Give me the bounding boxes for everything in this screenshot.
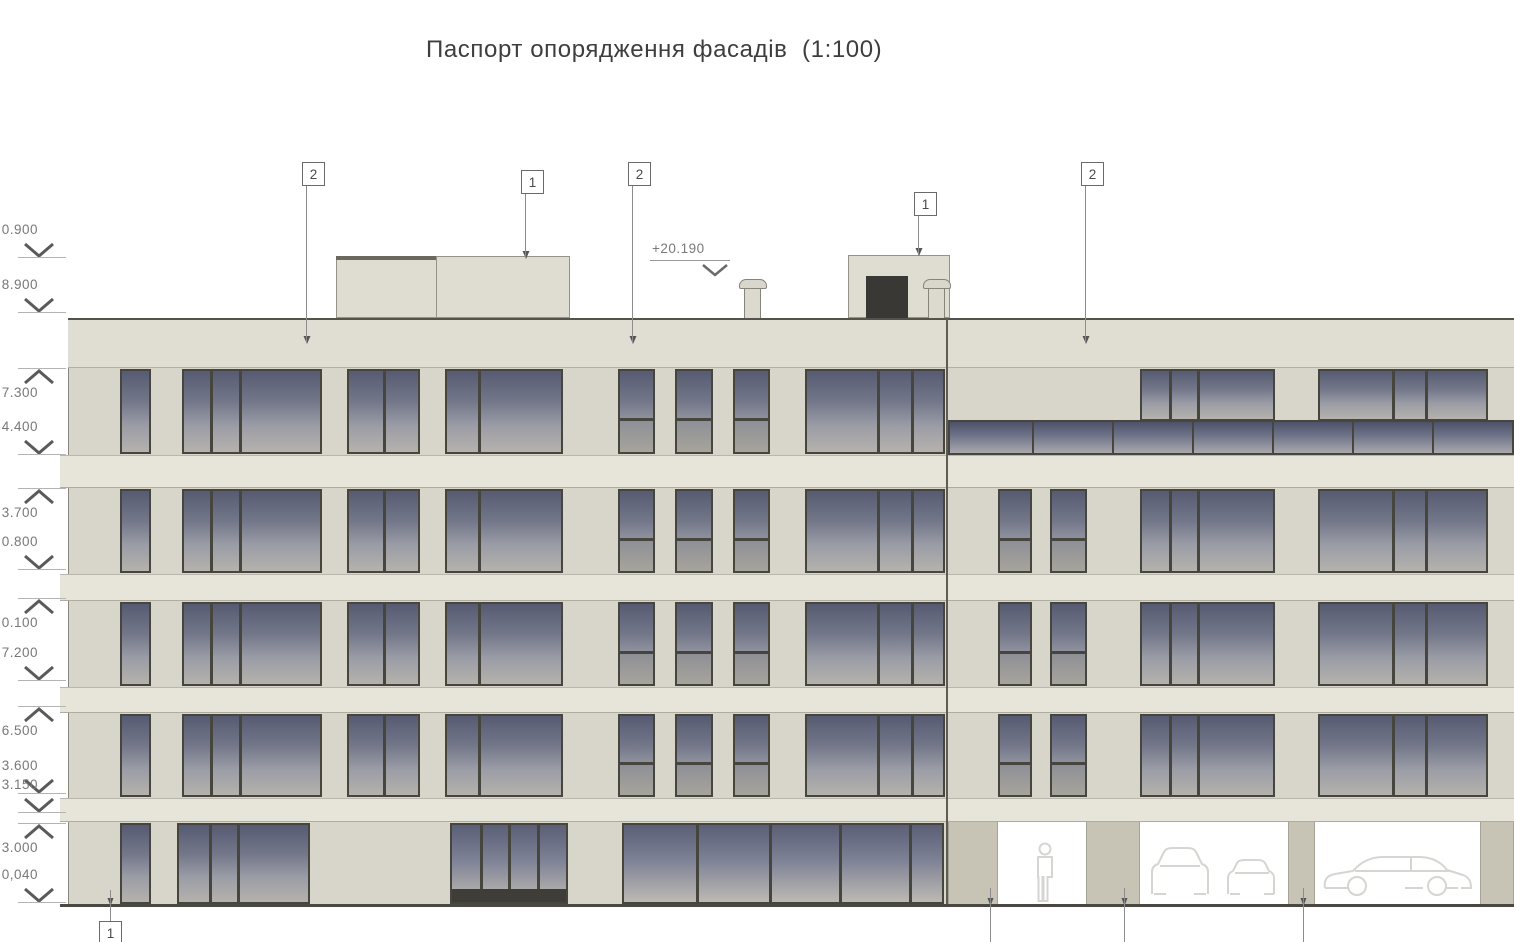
window-mullion [1197, 491, 1200, 571]
window-mullion [877, 716, 880, 795]
window [450, 823, 568, 904]
window-mullion [1169, 491, 1172, 571]
window [805, 714, 945, 797]
window-lower-pane [735, 538, 768, 571]
elevation-marker-label: 3.000 [0, 840, 38, 855]
elevation-marker-chevron-down [22, 887, 56, 903]
window-mullion [239, 491, 242, 571]
window-lower-pane [735, 418, 768, 452]
window [1318, 714, 1488, 797]
window-mullion [1169, 604, 1172, 684]
facade-elevation-drawing: +20.190212120.9008.9007.3004.4003.7000.8… [0, 0, 1514, 942]
axis-leader-line [1124, 888, 1125, 942]
window [675, 602, 713, 686]
window-mullion [909, 825, 912, 902]
window-mullion [383, 371, 386, 452]
roof-vent-stem [744, 289, 761, 318]
elevation-marker-label: 3.600 [0, 758, 38, 773]
spandrel-band [60, 574, 1514, 601]
window [1318, 489, 1488, 573]
window [1318, 602, 1488, 686]
window-mullion [239, 371, 242, 452]
elevation-marker-line [18, 680, 66, 681]
spandrel-band [60, 798, 1514, 822]
window-mullion [478, 716, 481, 795]
window [1140, 714, 1275, 797]
elevation-marker-chevron-up [22, 489, 56, 505]
callout-leader-arrow [522, 251, 530, 259]
callout-leader-line [525, 192, 526, 258]
callout-leader-arrow [915, 248, 923, 256]
window-mullion [1425, 371, 1428, 419]
window [733, 602, 770, 686]
window [1318, 369, 1488, 421]
bottom-section-callout: 1 [99, 921, 122, 942]
window-mullion [210, 491, 213, 571]
elevation-marker-chevron-down [22, 554, 56, 570]
window [177, 823, 310, 904]
window-mullion [1425, 716, 1428, 795]
roof-penthouse-divider [436, 256, 437, 318]
window-mullion [239, 604, 242, 684]
window-lower-pane [1000, 538, 1030, 571]
window-mullion [1425, 604, 1428, 684]
window [733, 489, 770, 573]
window-mullion [1425, 491, 1428, 571]
callout-leader-arrow [629, 336, 637, 344]
window-lower-pane [620, 762, 653, 795]
window [1140, 602, 1275, 686]
roof-level-chevron [700, 262, 730, 278]
elevation-marker-chevron-up [22, 707, 56, 723]
section-callout: 1 [914, 192, 937, 216]
callout-leader-line [918, 214, 919, 255]
window [120, 823, 151, 904]
ribbon-mullion [1112, 422, 1114, 453]
window-mullion [1197, 604, 1200, 684]
elevation-marker-label: 0.800 [0, 534, 38, 549]
window-mullion [696, 825, 699, 902]
entrance-threshold [452, 889, 566, 902]
elevation-marker-line [18, 823, 66, 824]
window [805, 369, 945, 454]
roof-level-underline [650, 260, 730, 261]
elevation-marker-line [18, 312, 66, 313]
spandrel-band [60, 687, 1514, 713]
cars-front-silhouette [1140, 822, 1288, 905]
window [733, 369, 770, 454]
roof-vent-stem [928, 289, 945, 318]
window-lower-pane [620, 418, 653, 452]
elevation-marker-chevron-down [22, 797, 56, 813]
window-lower-pane [677, 651, 711, 684]
elevation-marker-label: 0,040 [0, 867, 38, 882]
window-lower-pane [735, 651, 768, 684]
window [675, 714, 713, 797]
elevation-marker-line [18, 902, 66, 903]
window-mullion [877, 604, 880, 684]
window-lower-pane [1052, 762, 1085, 795]
section-callout: 2 [302, 162, 325, 186]
window [998, 489, 1032, 573]
window [182, 369, 322, 454]
elevation-marker-chevron-down [22, 665, 56, 681]
elevation-marker-line [18, 812, 66, 813]
axis-leader-line [990, 888, 991, 942]
section-callout: 2 [1081, 162, 1104, 186]
window [622, 823, 944, 904]
roof-penthouse-left-cap [336, 256, 436, 260]
window-mullion [478, 604, 481, 684]
window [998, 602, 1032, 686]
window-mullion [237, 825, 240, 902]
elevation-marker-label: 3.150 [0, 777, 38, 792]
person-silhouette [998, 822, 1086, 905]
elevation-marker-chevron-up [22, 599, 56, 615]
window-mullion [210, 371, 213, 452]
window [1140, 369, 1275, 421]
window [1140, 489, 1275, 573]
elevation-marker-label: 8.900 [0, 277, 38, 292]
window [675, 489, 713, 573]
window-mullion [210, 716, 213, 795]
window [182, 714, 322, 797]
window [618, 714, 655, 797]
callout-leader-line [1085, 184, 1086, 343]
window-mullion [1392, 371, 1395, 419]
elevation-marker-line [18, 706, 66, 707]
elevation-marker-line [18, 368, 66, 369]
window-lower-pane [677, 538, 711, 571]
roof-penthouse [336, 256, 570, 318]
facade-section-divider [946, 318, 948, 905]
elevation-marker-label: 0.900 [0, 222, 38, 237]
window [1050, 602, 1087, 686]
window [347, 489, 420, 573]
ribbon-mullion [1352, 422, 1354, 453]
window-mullion [1169, 716, 1172, 795]
ribbon-mullion [1032, 422, 1034, 453]
elevation-marker-label: 3.700 [0, 505, 38, 520]
window [998, 714, 1032, 797]
window [120, 714, 151, 797]
window-mullion [911, 491, 914, 571]
window-mullion [877, 371, 880, 452]
elevation-marker-chevron-up [22, 824, 56, 840]
parking-column [1480, 822, 1514, 905]
window-mullion [1197, 371, 1200, 419]
roof-vent-cap [739, 279, 767, 289]
window [805, 602, 945, 686]
window [618, 489, 655, 573]
elevation-marker-chevron-down [22, 439, 56, 455]
car-side-silhouette [1315, 822, 1480, 905]
window-mullion [911, 716, 914, 795]
window [1050, 489, 1087, 573]
elevation-marker-label: 0.100 [0, 615, 38, 630]
parapet-band [68, 318, 1514, 368]
elevation-marker-chevron-down [22, 242, 56, 258]
elevation-marker-chevron-up [22, 369, 56, 385]
window-mullion [911, 371, 914, 452]
window-mullion [239, 716, 242, 795]
window-mullion [1169, 371, 1172, 419]
elevation-marker-label: 7.300 [0, 385, 38, 400]
window-mullion [383, 604, 386, 684]
elevation-marker-label: 6.500 [0, 723, 38, 738]
window [182, 602, 322, 686]
ground-line [60, 904, 1514, 907]
window-mullion [877, 491, 880, 571]
elevation-marker-line [18, 488, 66, 489]
window-lower-pane [620, 538, 653, 571]
elevation-marker-label: 7.200 [0, 645, 38, 660]
callout-leader-line [306, 184, 307, 343]
window [120, 369, 151, 454]
window [445, 602, 563, 686]
window [1050, 714, 1087, 797]
window [120, 489, 151, 573]
window-lower-pane [1052, 651, 1085, 684]
section-callout: 1 [521, 170, 544, 194]
spandrel-band [60, 455, 1514, 488]
window-mullion [769, 825, 772, 902]
callout-leader-line [632, 184, 633, 343]
window-lower-pane [1000, 651, 1030, 684]
window-mullion [383, 716, 386, 795]
callout-leader-arrow [1082, 336, 1090, 344]
window [347, 369, 420, 454]
window-mullion [478, 491, 481, 571]
window-lower-pane [620, 651, 653, 684]
bottom-callout-leader [110, 890, 111, 921]
window [120, 602, 151, 686]
window [445, 369, 563, 454]
elevation-marker-line [18, 454, 66, 455]
parking-column [1288, 822, 1315, 905]
window [805, 489, 945, 573]
window-mullion [839, 825, 842, 902]
window-mullion [210, 604, 213, 684]
elevation-marker-label: 4.400 [0, 419, 38, 434]
window-mullion [1392, 604, 1395, 684]
window [347, 602, 420, 686]
window-lower-pane [735, 762, 768, 795]
window-mullion [1197, 716, 1200, 795]
window-mullion [1392, 491, 1395, 571]
window-lower-pane [677, 762, 711, 795]
window [347, 714, 420, 797]
window-mullion [478, 371, 481, 452]
window-lower-pane [677, 418, 711, 452]
roof-vent-cap [923, 279, 951, 289]
elevation-marker-line [18, 257, 66, 258]
callout-leader-arrow [303, 336, 311, 344]
window-lower-pane [1052, 538, 1085, 571]
axis-leader-line [1303, 888, 1304, 942]
ribbon-mullion [1272, 422, 1274, 453]
window-mullion [1392, 716, 1395, 795]
window [733, 714, 770, 797]
window [445, 714, 563, 797]
window [182, 489, 322, 573]
elevation-marker-line [18, 598, 66, 599]
ribbon-mullion [1192, 422, 1194, 453]
elevation-marker-line [18, 793, 66, 794]
ribbon-window [948, 420, 1514, 455]
window [675, 369, 713, 454]
ribbon-mullion [1432, 422, 1434, 453]
parking-column [1086, 822, 1140, 905]
window-mullion [383, 491, 386, 571]
facade-drawing-canvas: Паспорт опорядження фасадів (1:100) +20.… [0, 0, 1514, 942]
roof-level-annotation: +20.190 [652, 241, 705, 256]
window-mullion [209, 825, 212, 902]
roof-door [866, 276, 908, 318]
window-lower-pane [1000, 762, 1030, 795]
window [618, 369, 655, 454]
elevation-marker-chevron-down [22, 297, 56, 313]
section-callout: 2 [628, 162, 651, 186]
window [445, 489, 563, 573]
window-mullion [911, 604, 914, 684]
window [618, 602, 655, 686]
elevation-marker-line [18, 569, 66, 570]
